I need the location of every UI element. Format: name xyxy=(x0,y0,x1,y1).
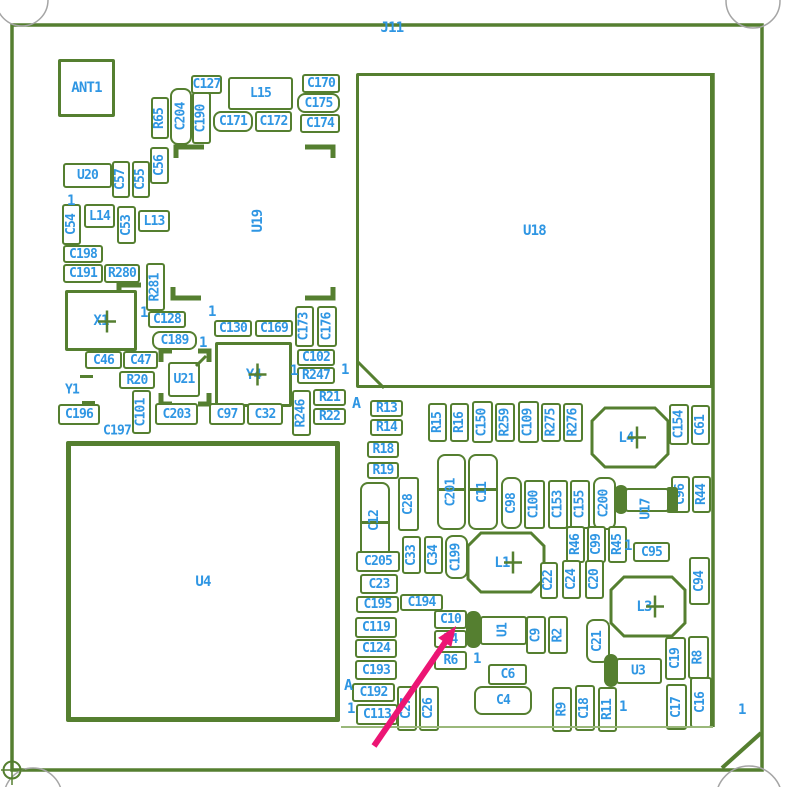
designator-text: C102 xyxy=(302,351,330,364)
designator-text: C150 xyxy=(476,408,489,436)
component-R65[interactable]: R65 xyxy=(151,97,169,139)
designator-text: X1 xyxy=(93,314,108,328)
designator-text: R22 xyxy=(319,410,340,423)
component-U18[interactable]: U18 xyxy=(356,73,713,388)
designator-text: R44 xyxy=(695,484,708,505)
designator-text: Y4 xyxy=(246,368,261,382)
pin1-marker: 1 xyxy=(619,700,626,714)
designator-text: C127 xyxy=(192,78,220,91)
designator-text: U21 xyxy=(173,373,194,386)
designator-text: U4 xyxy=(195,575,210,589)
component-U4[interactable]: U4 xyxy=(66,441,340,722)
designator-text: C199 xyxy=(450,543,463,571)
component-label-L3: L3 xyxy=(636,600,651,614)
component-C99[interactable]: C99 xyxy=(587,526,606,563)
designator-text: C54 xyxy=(65,214,78,235)
designator-text: C26 xyxy=(423,698,436,719)
pin1-marker: 1 xyxy=(738,703,745,717)
component-R13[interactable]: R13 xyxy=(370,400,403,417)
component-C203[interactable]: C203 xyxy=(155,403,198,425)
component-R15[interactable]: R15 xyxy=(428,403,447,442)
designator-text: C175 xyxy=(304,97,332,110)
component-R281[interactable]: R281 xyxy=(146,263,165,311)
component-C16[interactable]: C16 xyxy=(690,677,712,728)
designator-text: R21 xyxy=(319,391,340,404)
component-C194[interactable]: C194 xyxy=(400,594,443,611)
component-C26[interactable]: C26 xyxy=(419,686,439,731)
designator-text: C53 xyxy=(120,214,133,235)
component-C17[interactable]: C17 xyxy=(666,684,687,730)
designator-text: R259 xyxy=(499,408,512,436)
designator-text: C100 xyxy=(528,490,541,518)
component-C95[interactable]: C95 xyxy=(633,542,670,562)
component-C189[interactable]: C189 xyxy=(152,331,197,350)
designator-text: C55 xyxy=(135,169,148,190)
designator-text: C170 xyxy=(307,77,335,90)
component-C54[interactable]: C54 xyxy=(62,204,81,245)
component-C175[interactable]: C175 xyxy=(297,93,340,113)
designator-text: C22 xyxy=(543,570,556,591)
component-R4[interactable]: R4 xyxy=(434,630,467,648)
component-R276[interactable]: R276 xyxy=(563,403,583,442)
component-C190[interactable]: C190 xyxy=(192,92,211,144)
designator-text: U20 xyxy=(77,169,98,182)
pin1-marker: 1 xyxy=(473,652,480,666)
component-L14[interactable]: L14 xyxy=(84,204,115,228)
component-U1-cap[interactable] xyxy=(466,611,481,648)
designator-text: C27 xyxy=(401,698,414,719)
component-U21[interactable]: U21 xyxy=(168,362,200,397)
component-R11[interactable]: R11 xyxy=(598,687,617,732)
designator-text: R275 xyxy=(545,408,558,436)
component-C6[interactable]: C6 xyxy=(488,664,527,685)
designator-text: C23 xyxy=(368,578,389,591)
designator-text: C95 xyxy=(641,546,662,559)
designator-text: C128 xyxy=(153,313,181,326)
designator-text: C20 xyxy=(588,569,601,590)
designator-text: C32 xyxy=(254,408,275,421)
designator-text: C109 xyxy=(522,408,535,436)
pin1-marker: 1 xyxy=(624,539,631,553)
component-C56[interactable]: C56 xyxy=(150,147,169,184)
designator-text: R45 xyxy=(611,534,624,555)
designator-text: C190 xyxy=(195,104,208,132)
pin1-marker: 1 xyxy=(347,702,354,716)
designator-text: R280 xyxy=(108,267,136,280)
pin1-marker: 1 xyxy=(140,306,147,320)
component-C24[interactable]: C24 xyxy=(562,560,581,599)
component-R22[interactable]: R22 xyxy=(313,408,346,425)
designator-text: C101 xyxy=(135,398,148,426)
pcb-stage: ANT1U18U4X1Y4L4L1L3C127L15C171C172C170C1… xyxy=(0,0,792,787)
component-R21[interactable]: R21 xyxy=(313,389,346,406)
designator-text: C46 xyxy=(93,354,114,367)
designator-text: C189 xyxy=(160,334,188,347)
component-C205[interactable]: C205 xyxy=(356,551,400,572)
designator-text: R14 xyxy=(376,421,397,434)
designator-text: C47 xyxy=(130,354,151,367)
component-C192[interactable]: C192 xyxy=(352,683,395,702)
component-C204[interactable]: C204 xyxy=(170,88,192,145)
component-C174[interactable]: C174 xyxy=(300,114,340,133)
designator-text: L14 xyxy=(89,210,110,223)
designator-text: R18 xyxy=(372,443,393,456)
designator-text: C176 xyxy=(321,312,334,340)
designator-text: C61 xyxy=(694,414,707,435)
component-C100[interactable]: C100 xyxy=(524,480,545,529)
designator-text: R16 xyxy=(453,412,466,433)
component-C47[interactable]: C47 xyxy=(123,351,158,369)
designator-text: C11 xyxy=(477,481,490,502)
pin1-marker: 1 xyxy=(290,364,297,378)
component-C128[interactable]: C128 xyxy=(148,311,186,328)
component-C191[interactable]: C191 xyxy=(63,264,103,283)
component-C4[interactable]: C4 xyxy=(474,686,532,715)
designator-text: C198 xyxy=(69,248,97,261)
pin1-marker: 1 xyxy=(341,363,348,377)
designator-text: C119 xyxy=(362,621,390,634)
designator-text: C173 xyxy=(298,312,311,340)
component-C27[interactable]: C27 xyxy=(397,686,417,731)
designator-text: C18 xyxy=(579,697,592,718)
designator-text: C34 xyxy=(427,544,440,565)
designator-text: C154 xyxy=(673,410,686,438)
component-C61[interactable]: C61 xyxy=(691,405,710,445)
designator-text: C195 xyxy=(363,598,391,611)
component-C196[interactable]: C196 xyxy=(58,404,100,425)
pin1-marker: 1 xyxy=(67,194,74,208)
component-R46[interactable]: R46 xyxy=(566,526,585,563)
component-label-L1: L1 xyxy=(494,556,509,570)
component-C113[interactable]: C113 xyxy=(356,704,398,725)
component-C18[interactable]: C18 xyxy=(575,685,595,731)
designator-text: L15 xyxy=(250,87,271,100)
designator-text: C16 xyxy=(695,692,708,713)
component-C20[interactable]: C20 xyxy=(585,560,604,599)
component-C153[interactable]: C153 xyxy=(548,480,568,529)
designator-text: ANT1 xyxy=(71,81,102,95)
component-Y4[interactable]: Y4 xyxy=(215,342,292,407)
component-X1[interactable]: X1 xyxy=(65,290,137,351)
component-L15[interactable]: L15 xyxy=(228,77,293,110)
component-C22[interactable]: C22 xyxy=(540,562,558,599)
designator-text: R20 xyxy=(126,374,147,387)
component-C195[interactable]: C195 xyxy=(356,596,399,613)
designator-text: C98 xyxy=(505,492,518,513)
designator-text: R247 xyxy=(302,369,330,382)
designator-text: R9 xyxy=(556,702,569,716)
designator-text: C153 xyxy=(552,490,565,518)
designator-text: C196 xyxy=(65,408,93,421)
component-C172[interactable]: C172 xyxy=(255,111,292,132)
component-R20[interactable]: R20 xyxy=(119,371,155,389)
component-C97[interactable]: C97 xyxy=(209,403,245,425)
component-R259[interactable]: R259 xyxy=(495,403,515,442)
component-C171[interactable]: C171 xyxy=(213,111,253,132)
designator-text: C203 xyxy=(162,408,190,421)
designator-text: C155 xyxy=(574,490,587,518)
component-ANT1[interactable]: ANT1 xyxy=(58,59,115,117)
text-label-U19: U19 xyxy=(251,210,265,233)
component-C199[interactable]: C199 xyxy=(445,535,468,579)
component-R16[interactable]: R16 xyxy=(450,403,469,442)
designator-text: C97 xyxy=(216,408,237,421)
designator-text: R19 xyxy=(372,464,393,477)
designator-text: R13 xyxy=(376,402,397,415)
designator-text: C171 xyxy=(219,115,247,128)
component-C11[interactable]: C11 xyxy=(468,454,498,530)
component-U20[interactable]: U20 xyxy=(63,163,112,188)
component-C200[interactable]: C200 xyxy=(593,477,616,530)
component-C150[interactable]: C150 xyxy=(472,401,493,443)
designator-text: R8 xyxy=(692,650,705,664)
component-label-U3: U3 xyxy=(631,665,645,678)
pin1-marker: 1 xyxy=(208,305,215,319)
component-C201[interactable]: C201 xyxy=(437,454,466,530)
component-R6[interactable]: R6 xyxy=(434,651,467,670)
polarity-marker: A xyxy=(344,678,352,693)
component-R247[interactable]: R247 xyxy=(297,367,335,384)
component-C32[interactable]: C32 xyxy=(247,403,283,425)
designator-text: R246 xyxy=(295,399,308,427)
designator-text: C201 xyxy=(445,478,458,506)
designator-text: R15 xyxy=(431,412,444,433)
component-C124[interactable]: C124 xyxy=(355,639,397,658)
designator-text: C193 xyxy=(362,664,390,677)
designator-text: U18 xyxy=(523,224,546,238)
designator-text: C6 xyxy=(500,668,514,681)
designator-text: R4 xyxy=(443,633,457,646)
component-C198[interactable]: C198 xyxy=(63,245,103,263)
designator-text: C28 xyxy=(402,493,415,514)
designator-text: C24 xyxy=(565,569,578,590)
designator-text: C205 xyxy=(364,555,392,568)
designator-text: C21 xyxy=(592,630,605,651)
designator-text: C19 xyxy=(669,648,682,669)
component-C57[interactable]: C57 xyxy=(112,161,130,198)
component-R14[interactable]: R14 xyxy=(370,419,403,436)
component-C19[interactable]: C19 xyxy=(665,637,686,680)
component-C101[interactable]: C101 xyxy=(132,390,151,434)
component-C34[interactable]: C34 xyxy=(424,536,443,574)
component-R2[interactable]: R2 xyxy=(548,616,568,654)
designator-text: R46 xyxy=(569,534,582,555)
component-label-U1: U1 xyxy=(497,623,510,637)
text-label-C197: C197 xyxy=(103,425,131,438)
designator-text: R65 xyxy=(154,107,167,128)
component-label-L4: L4 xyxy=(618,431,633,445)
component-L13[interactable]: L13 xyxy=(138,210,170,232)
component-R18[interactable]: R18 xyxy=(367,441,399,458)
designator-text: C113 xyxy=(363,708,391,721)
designator-text: C33 xyxy=(405,544,418,565)
designator-text: L13 xyxy=(143,215,164,228)
designator-text: C174 xyxy=(306,117,334,130)
pin1-marker: 1 xyxy=(199,336,206,350)
component-C173[interactable]: C173 xyxy=(295,306,314,347)
designator-text: C12 xyxy=(369,509,382,530)
designator-text: C17 xyxy=(670,696,683,717)
designator-text: C4 xyxy=(496,694,510,707)
designator-text: C124 xyxy=(362,642,390,655)
designator-text: R276 xyxy=(567,408,580,436)
component-C33[interactable]: C33 xyxy=(402,536,421,574)
component-C102[interactable]: C102 xyxy=(297,349,335,366)
component-C170[interactable]: C170 xyxy=(302,74,340,93)
component-C9[interactable]: C9 xyxy=(526,616,546,654)
component-C12[interactable]: C12 xyxy=(360,482,390,558)
component-C55[interactable]: C55 xyxy=(132,161,150,198)
component-C155[interactable]: C155 xyxy=(570,480,590,529)
component-C109[interactable]: C109 xyxy=(518,401,539,443)
component-C46[interactable]: C46 xyxy=(85,351,122,369)
component-C130[interactable]: C130 xyxy=(214,320,252,337)
component-R19[interactable]: R19 xyxy=(367,462,399,479)
designator-text: C194 xyxy=(407,596,435,609)
designator-text: C204 xyxy=(175,102,188,130)
component-C28[interactable]: C28 xyxy=(398,477,419,531)
designator-text: R11 xyxy=(601,699,614,720)
designator-text: C200 xyxy=(598,489,611,517)
component-C193[interactable]: C193 xyxy=(355,660,397,680)
component-C176[interactable]: C176 xyxy=(317,306,337,347)
component-R246[interactable]: R246 xyxy=(292,390,311,436)
designator-text: R6 xyxy=(443,654,457,667)
designator-text: C10 xyxy=(440,613,461,626)
designator-text: C172 xyxy=(259,115,287,128)
designator-text: C169 xyxy=(260,322,288,335)
component-C154[interactable]: C154 xyxy=(669,404,689,445)
component-R9[interactable]: R9 xyxy=(552,687,572,732)
designator-text: C130 xyxy=(219,322,247,335)
component-C53[interactable]: C53 xyxy=(117,206,136,244)
designator-text: R281 xyxy=(149,273,162,301)
designator-text: C56 xyxy=(153,155,166,176)
component-C98[interactable]: C98 xyxy=(501,477,522,529)
text-label-Y1: Y1 xyxy=(65,384,79,397)
component-R44[interactable]: R44 xyxy=(692,476,711,513)
component-label-U17: U17 xyxy=(640,498,653,519)
text-label-J11: J11 xyxy=(381,21,404,35)
designator-text: C99 xyxy=(590,534,603,555)
component-C10[interactable]: C10 xyxy=(434,610,467,629)
designator-text: C192 xyxy=(359,686,387,699)
designator-text: R2 xyxy=(552,628,565,642)
component-R280[interactable]: R280 xyxy=(104,264,140,283)
designator-text: C57 xyxy=(115,169,128,190)
designator-text: C191 xyxy=(69,267,97,280)
component-C119[interactable]: C119 xyxy=(355,617,397,638)
designator-text: C94 xyxy=(693,570,706,591)
component-C169[interactable]: C169 xyxy=(255,320,293,337)
component-R8[interactable]: R8 xyxy=(688,636,709,679)
polarity-marker: A xyxy=(352,396,360,411)
component-C23[interactable]: C23 xyxy=(360,574,398,594)
component-R275[interactable]: R275 xyxy=(541,403,561,442)
component-C94[interactable]: C94 xyxy=(689,557,710,605)
designator-text: C9 xyxy=(530,628,543,642)
